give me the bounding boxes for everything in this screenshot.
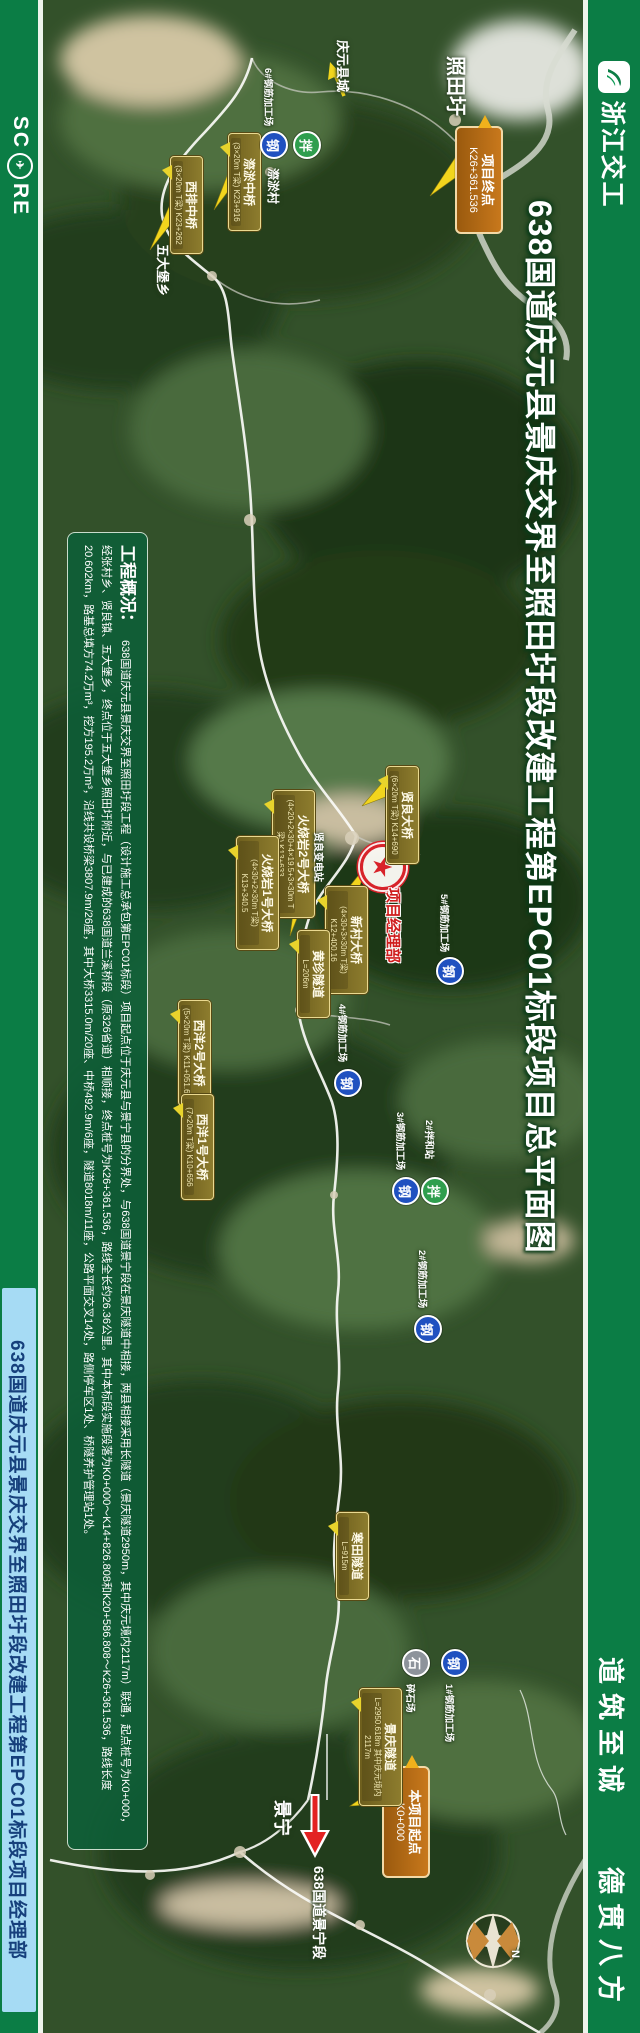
slogan-top: 道筑至诚 (598, 1654, 632, 1804)
overview-title: 工程概况： (118, 545, 137, 630)
bridge-tunnel-label: 黄珍隧道 L=206m (297, 930, 330, 1018)
endpoint-marker: 项目终点 K26+361.536 (455, 126, 503, 234)
label-name: 寒田隧道 (349, 1517, 366, 1595)
project-overview-panel: 工程概况：638国道庆元县景庆交界至照田圩段工程（设计施工总承包第EPC01标段… (67, 532, 148, 1850)
hq-label: 项目经理部 (386, 888, 404, 968)
label-spec: L=915m (339, 1517, 349, 1595)
place-name-text: 贤良变电站 (313, 832, 327, 900)
facility-label-text: 2#拌和站 (425, 1120, 437, 1190)
label-spec: L=2950.618m 其中庆元境内2117m (362, 1693, 382, 1801)
label-spec: (4×30+2×30m T梁) K13+340.5 (239, 841, 259, 945)
right-banner: 浙江交工 道筑至诚 德贯八方 (583, 0, 640, 2033)
bridge-tunnel-label: 贤良大桥 (6×20m T梁) K14+690 (386, 766, 419, 864)
globe-plane-icon: ✈ (7, 153, 33, 179)
label-name: 黄珍隧道 (310, 935, 327, 1013)
place-name-text: 638国道景宁段 (311, 1866, 329, 2002)
facility-badge-icon: 石 (402, 1649, 430, 1677)
facility-label-text: 1#钢筋加工场 (445, 1684, 457, 1754)
overview-body: 638国道庆元县景庆交界至照田圩段工程（设计施工总承包第EPC01标段）项目起点… (82, 545, 131, 1828)
slogan-bottom: 德贯八方 (598, 1864, 632, 2014)
label-name: 火烧岩2号大桥 (295, 795, 312, 913)
endpoint-label: 项目终点 (479, 134, 498, 226)
label-name: 漈淤中桥 (241, 138, 258, 226)
bridge-tunnel-label: 火烧岩1号大桥 (4×30+2×30m T梁) K13+340.5 (236, 836, 279, 950)
bridge-tunnel-label: 景庆隧道 L=2950.618m 其中庆元境内2117m (359, 1688, 402, 1806)
label-name: 景庆隧道 (382, 1693, 399, 1801)
bridge-tunnel-label: 新村大桥 (4×30+3×30m T梁) K12+400.16 (325, 886, 368, 994)
label-name: 新村大桥 (348, 891, 365, 989)
place-name-text: 漈淤村 (266, 168, 282, 218)
place-name-text: N (506, 1950, 521, 1971)
facility-label-text: 3#钢筋加工场 (396, 1112, 408, 1182)
bridge-tunnel-label: 漈淤中桥 (3×20m T梁) K23+916 (228, 133, 261, 231)
endpoint-chainage: K26+361.536 (467, 134, 479, 226)
place-name-text: 照田圩 (448, 56, 472, 130)
score-logo-text-pre: SC (8, 116, 32, 149)
project-department-strip: 638国道庆元县景庆交界至照田圩段改建工程第EPC01标段项目经理部 (2, 1288, 36, 2012)
facility-label-text: 碎石场 (406, 1684, 418, 1754)
facility-badge-icon: 钢 (441, 1649, 469, 1677)
project-master-plan-poster: 638国道庆元县景庆交界至照田圩段改建工程第EPC01标段项目总平面图 工程概况… (0, 0, 640, 2033)
label-spec: (4×30+3×30m T梁) K12+400.16 (328, 891, 348, 989)
facility-label-text: 4#钢筋加工场 (338, 1004, 350, 1074)
label-spec: (5×20m T梁) K11+051.66 (181, 1005, 191, 1101)
place-name-text: 景宁 (274, 1800, 296, 1848)
facility-label-text: 5#钢筋加工场 (440, 894, 452, 964)
label-spec: (6×20m T梁) K14+690 (389, 771, 399, 859)
label-name: 火烧岩1号大桥 (259, 841, 276, 945)
label-name: 贤良大桥 (399, 771, 416, 859)
place-name-text: 五大堡乡 (156, 244, 173, 312)
label-name: 西洋2号大桥 (191, 1005, 208, 1101)
bridge-tunnel-label: 西洋2号大桥 (5×20m T梁) K11+051.66 (178, 1000, 211, 1106)
score-logo-text-post: RE (8, 183, 32, 216)
label-spec: (3×20m T梁) K23+262 (173, 161, 183, 249)
bridge-tunnel-label: 西排中桥 (3×20m T梁) K23+262 (170, 156, 203, 254)
score-logo: SC✈RE (5, 96, 35, 236)
place-name-text: 庆元县城 (336, 40, 353, 108)
label-spec: L=206m (300, 935, 310, 1013)
zjcc-logo-text: 浙江交工 (596, 100, 632, 208)
bridge-tunnel-label: 寒田隧道 L=915m (336, 1512, 369, 1600)
label-name: 西洋1号大桥 (194, 1099, 211, 1195)
left-banner: SC✈RE 638国道庆元县景庆交界至照田圩段改建工程第EPC01标段项目经理部 (0, 0, 43, 2033)
facility-label-text: 2#钢筋加工场 (418, 1250, 430, 1320)
label-spec: (7×20m T梁) K10+656 (184, 1099, 194, 1195)
bridge-tunnel-label: 西洋1号大桥 (7×20m T梁) K10+656 (181, 1094, 214, 1200)
map-title: 638国道庆元县景庆交界至照田圩段改建工程第EPC01标段项目总平面图 (515, 200, 565, 1360)
startpoint-label: 本项目起点 (406, 1774, 425, 1870)
label-spec: (3×20m T梁) K23+916 (231, 138, 241, 226)
zjcc-brand-icon (598, 61, 630, 93)
zhejiang-communications-logo: 浙江交工 (594, 56, 634, 214)
label-name: 西排中桥 (183, 161, 200, 249)
facility-badge-icon: 拌 (293, 131, 321, 159)
facility-label-text: 6#钢筋加工场 (264, 68, 276, 138)
